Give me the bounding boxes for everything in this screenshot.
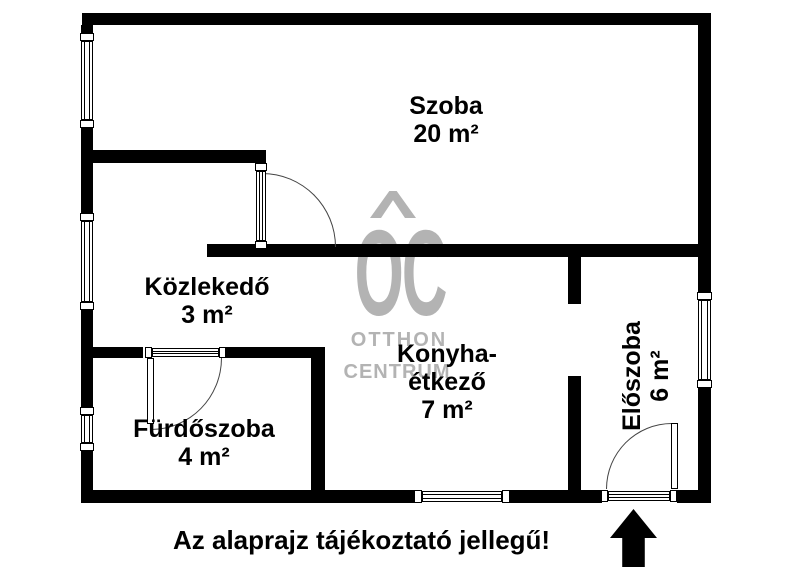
door-bathroom-cap-left [145,347,152,358]
door-bathroom-cap-right [219,347,226,358]
room-area-eloszoba: 6 m² [646,321,674,431]
room-name-furdoszoba: Fürdőszoba [133,415,275,443]
window-left-1 [81,41,93,120]
room-label-konyha-etkezo: Konyha- étkező 7 m² [397,340,497,424]
wall-hall-divider-b [568,376,581,503]
window-left-3 [81,415,93,443]
window-bottom-cap-right [502,490,510,503]
door-entrance-swing-arc [606,423,672,489]
window-right-cap-top [697,292,712,300]
room-area-konyha: 7 m² [397,396,497,424]
door-entrance-threshold [608,491,670,501]
disclaimer-text: Az alaprajz tájékoztató jellegű! [173,525,550,556]
door-bathroom-threshold [152,348,219,357]
wall-bottom-seg2 [510,490,602,503]
room-area-szoba: 20 m² [409,120,483,148]
door-entrance-leaf [671,423,678,489]
window-left-2-cap-top [80,213,94,221]
wall-hall-divider-a [568,257,581,304]
window-bottom-cap-left [414,490,422,503]
room-label-furdoszoba: Fürdőszoba 4 m² [133,415,275,471]
wall-left-seg1 [81,127,93,214]
window-left-1-cap-top [80,33,94,41]
room-name-konyha-line1: Konyha- [397,340,497,368]
wall-bathroom-left [82,347,143,358]
entrance-arrow-icon [610,509,657,567]
door-entrance-cap-right [670,490,677,502]
room-name-kozlekedo: Közlekedő [144,273,269,301]
wall-right-seg2 [698,388,711,503]
wall-top [82,13,711,25]
window-left-3-cap-top [80,407,94,415]
wall-left-seg2 [81,310,93,408]
door-szoba-threshold [256,171,266,241]
room-name-konyha-line2: étkező [397,368,497,396]
room-label-szoba: Szoba 20 m² [409,92,483,148]
wall-bottom-seg1 [82,490,414,503]
window-left-2-cap-bottom [80,302,94,310]
window-right-cap-bottom [697,380,712,388]
wall-bottom-seg3 [677,490,711,503]
room-area-furdoszoba: 4 m² [133,443,275,471]
room-label-kozlekedo: Közlekedő 3 m² [144,273,269,329]
window-left-1-cap-bottom [80,120,94,128]
door-szoba-cap-bottom [255,241,267,249]
door-entrance-cap-left [601,490,608,502]
room-name-eloszoba: Előszoba [618,321,646,431]
wall-bathroom-side [311,347,325,503]
watermark-logo: OC [355,212,446,334]
window-left-3-cap-bottom [80,443,94,451]
door-szoba-swing-arc [262,173,336,247]
wall-szoba-divider [82,150,266,163]
floorplan-canvas: OC OTTHON CENTRUM [0,0,800,578]
window-bottom [422,491,502,502]
door-szoba-cap-top [255,163,267,171]
window-right [698,300,711,380]
room-area-kozlekedo: 3 m² [144,301,269,329]
room-name-szoba: Szoba [409,92,483,120]
window-left-2 [81,221,93,302]
room-label-eloszoba: Előszoba 6 m² [618,321,674,431]
